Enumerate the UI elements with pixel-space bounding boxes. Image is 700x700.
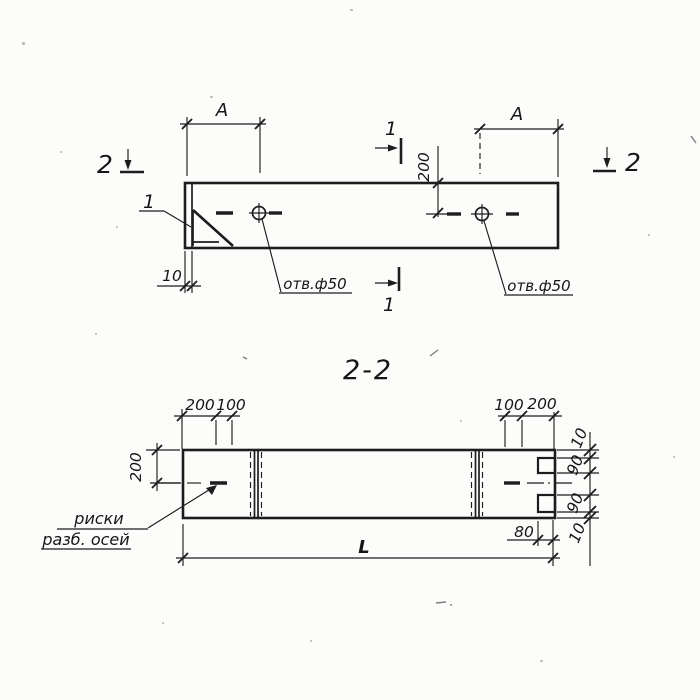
hole-callout-right: отв.ф50	[484, 221, 573, 295]
speckle	[210, 96, 213, 98]
beam-outline-plan	[185, 183, 558, 248]
dim-length-label: L	[358, 537, 369, 558]
section-mark-1-bottom: 1	[375, 267, 399, 316]
gusset-leader: 1	[139, 191, 191, 227]
section-title: 2-2	[343, 355, 393, 386]
notch-top	[538, 458, 555, 473]
dim-tr-100: 100	[494, 396, 524, 414]
speckle	[310, 640, 312, 642]
dim-tl-200: 200	[185, 396, 215, 414]
hole-callout-left: отв.ф50	[262, 219, 352, 293]
hole-left	[216, 203, 282, 223]
drawing-sheet: 1 отв.ф50 отв.	[0, 0, 700, 700]
hole-callout-left-label: отв.ф50	[283, 275, 346, 293]
speckle	[673, 456, 675, 458]
dim-right-chain: 10 90 90 10	[557, 425, 599, 566]
section-mark-2-right: 2	[593, 147, 641, 177]
dim-a-right-label: A	[510, 104, 523, 125]
section-view: риски разб. осей 200 100	[41, 395, 599, 566]
section-2-left-label: 2	[97, 150, 113, 179]
axis-note-line1: риски	[73, 509, 123, 528]
speckle	[162, 622, 164, 624]
dim-left-200: 200	[127, 443, 180, 491]
dim-left-200-label: 200	[127, 452, 145, 482]
axis-note-leader	[148, 488, 212, 528]
dim-tr-200: 200	[527, 395, 557, 413]
section-2-right-label: 2	[625, 148, 641, 177]
dim-top-right: 100 200	[494, 395, 562, 449]
dim-tl-100: 100	[216, 396, 246, 414]
dim-a-left-label: A	[215, 100, 228, 121]
section-1-bottom-label: 1	[383, 294, 395, 316]
dim-10-plan-label: 10	[162, 267, 182, 285]
hole-right	[447, 204, 519, 224]
dim-right-90-top: 90	[563, 452, 587, 477]
dim-10-plan: 10	[157, 251, 201, 293]
section-1-top-label: 1	[385, 118, 397, 140]
gusset-label: 1	[143, 191, 155, 213]
corner-gusset	[193, 210, 233, 246]
notch-bottom	[538, 495, 555, 512]
dim-80-label: 80	[514, 523, 534, 541]
speckle	[460, 420, 462, 422]
dim-80: 80	[507, 521, 560, 546]
section-mark-1-top: 1	[375, 118, 401, 164]
section-mark-2-left: 2	[97, 149, 144, 179]
speckle	[60, 151, 62, 153]
dim-a-left: A	[180, 100, 266, 176]
speckle	[648, 234, 650, 236]
speckle	[116, 226, 118, 228]
speckle	[540, 660, 543, 662]
plan-view: 1 отв.ф50 отв.	[97, 100, 641, 316]
dim-200-plan-label: 200	[415, 152, 433, 182]
speckle	[22, 42, 25, 45]
dim-a-right: A	[474, 104, 564, 177]
joint-lines-right	[472, 451, 483, 517]
technical-drawing: 1 отв.ф50 отв.	[0, 0, 700, 700]
dim-right-10-bottom: 10	[565, 520, 589, 545]
dim-top-left: 200 100	[174, 396, 246, 449]
speckle	[350, 9, 353, 11]
axis-note-line2: разб. осей	[41, 530, 129, 549]
dim-length: L	[176, 520, 560, 566]
dim-right-10-top: 10	[567, 425, 591, 450]
joint-lines-left	[251, 451, 262, 517]
beam-outline-section	[183, 450, 555, 518]
scan-noise	[243, 136, 696, 605]
hole-callout-right-label: отв.ф50	[507, 277, 570, 295]
speckle	[95, 333, 97, 335]
